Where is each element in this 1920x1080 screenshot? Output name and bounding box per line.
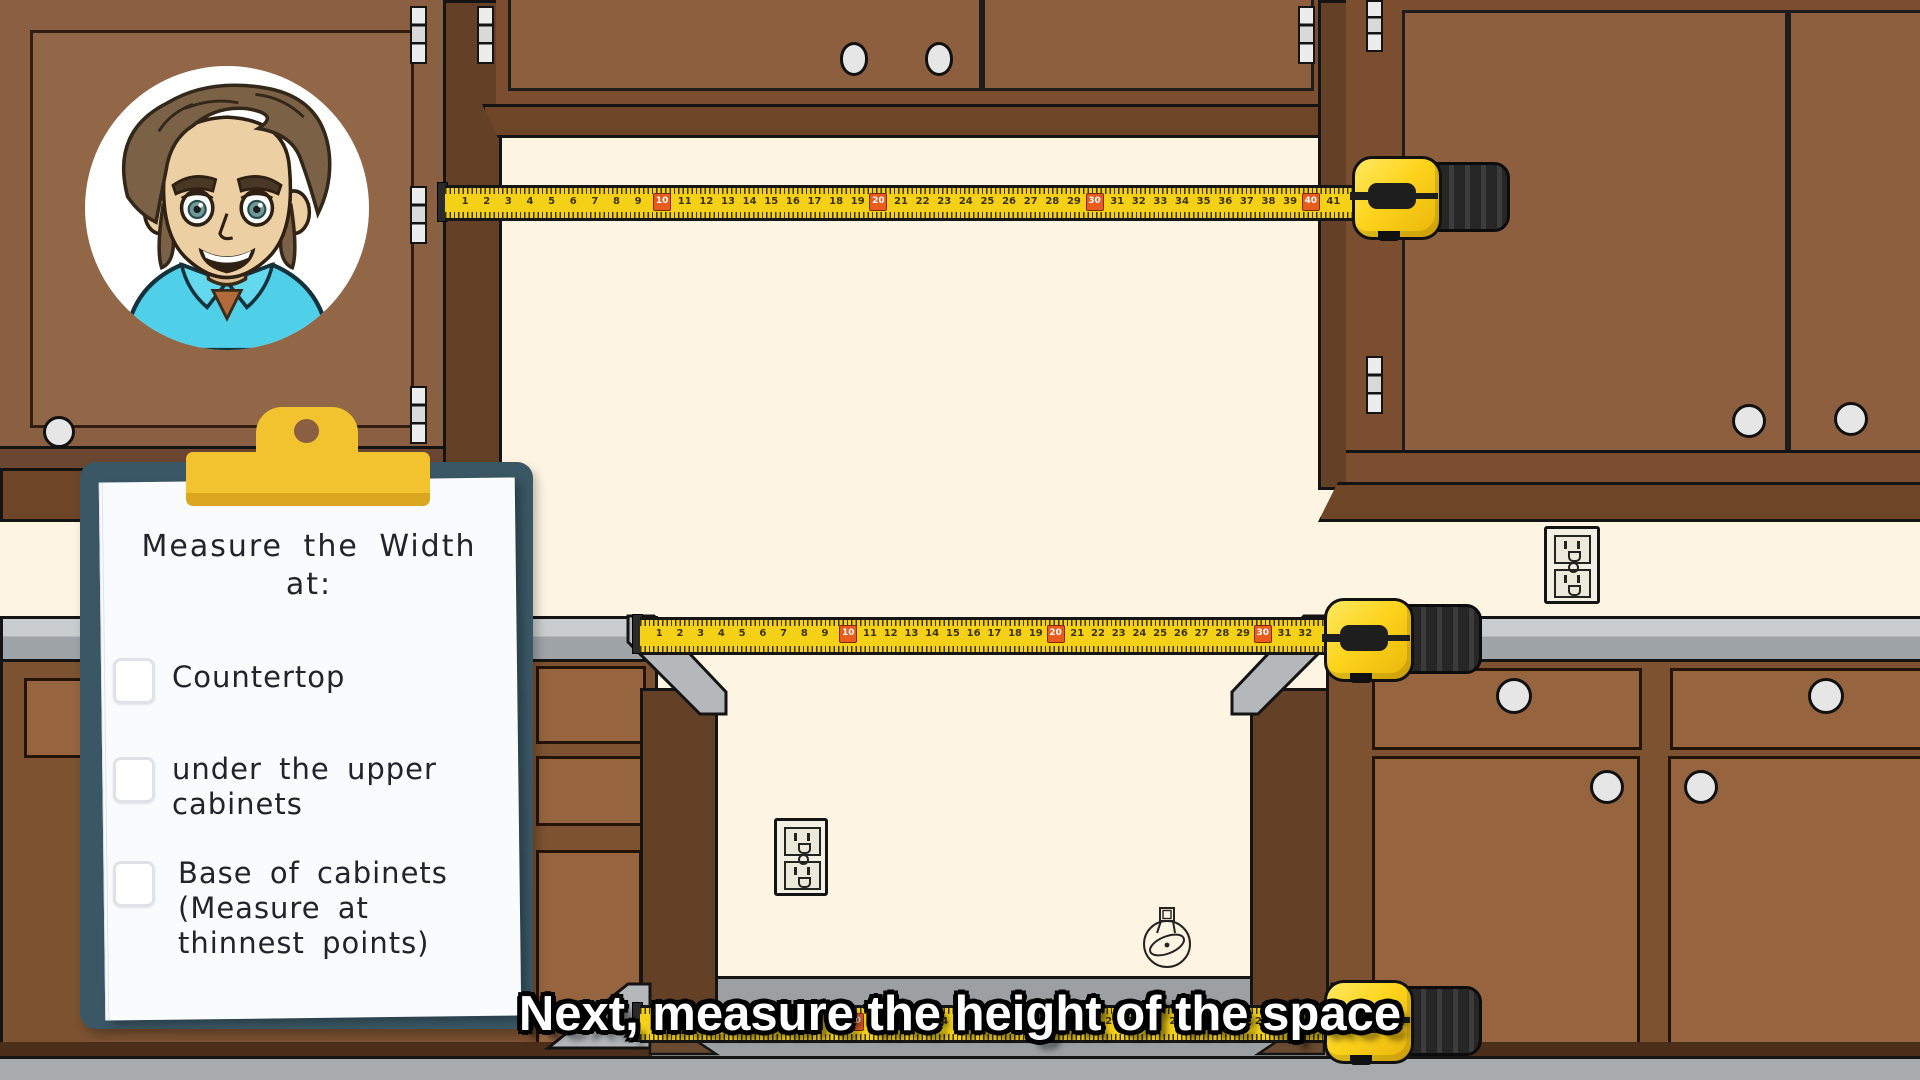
checkbox-under-upper-cabinets xyxy=(113,757,155,803)
checklist-item-label: under the upper cabinets xyxy=(172,752,512,822)
lower-left-drawer xyxy=(536,666,646,744)
upper-middle-door-right xyxy=(982,0,1314,91)
tape-scale-number: 13 xyxy=(721,196,735,208)
tape-scale-number: 16 xyxy=(786,196,800,208)
tape-scale-number: 30 xyxy=(1086,193,1104,211)
checklist-heading: Measure the Width at: xyxy=(118,528,500,603)
tape-scale-number: 19 xyxy=(851,196,865,208)
hinge-icon xyxy=(1366,356,1383,414)
tape-scale-number: 29 xyxy=(1067,196,1081,208)
tape-scale-number: 20 xyxy=(1047,625,1065,643)
tape-scale-number: 31 xyxy=(1278,628,1292,640)
cabinet-knob xyxy=(1834,402,1868,436)
tape-scale-number: 14 xyxy=(925,628,939,640)
tape-scale-number: 3 xyxy=(697,628,704,640)
tape-measure-band-top: 1234567891011121314151617181920212223242… xyxy=(445,185,1353,221)
tape-scale-number: 24 xyxy=(959,196,973,208)
tape-scale-number: 12 xyxy=(699,196,713,208)
cabinet-knob xyxy=(43,416,75,448)
tape-scale-number: 31 xyxy=(1110,196,1124,208)
tape-scale-number: 7 xyxy=(591,196,598,208)
tape-scale-number: 32 xyxy=(1298,628,1312,640)
tape-scale-number: 29 xyxy=(1236,628,1250,640)
tape-scale-number: 41 xyxy=(1326,196,1340,208)
tape-scale-number: 37 xyxy=(1240,196,1254,208)
checkbox-countertop xyxy=(113,658,155,704)
tape-scale-number: 25 xyxy=(1153,628,1167,640)
upper-right-cabinet-rail xyxy=(1346,450,1920,485)
tape-scale-number: 8 xyxy=(801,628,808,640)
tape-scale-number: 35 xyxy=(1197,196,1211,208)
lower-right-side-column xyxy=(1250,688,1332,1022)
tape-measure-band-middle: 1234567891011121314151617181920212223242… xyxy=(640,617,1324,655)
cabinet-knob xyxy=(1684,770,1718,804)
tape-scale-number: 7 xyxy=(780,628,787,640)
hinge-icon xyxy=(1366,0,1383,52)
tape-scale-number: 21 xyxy=(1070,628,1084,640)
tape-scale-number: 9 xyxy=(822,628,829,640)
checklist-item-label: Countertop xyxy=(172,660,502,695)
tape-scale-number: 26 xyxy=(1002,196,1016,208)
tape-scale-number: 1 xyxy=(656,628,663,640)
cabinet-knob xyxy=(925,42,953,76)
clipboard-clip-hole xyxy=(294,419,319,443)
tape-scale-number: 30 xyxy=(1254,625,1272,643)
tape-scale-number: 5 xyxy=(739,628,746,640)
tape-scale-number: 27 xyxy=(1195,628,1209,640)
tape-scale-number: 19 xyxy=(1029,628,1043,640)
tape-scale-number: 26 xyxy=(1174,628,1188,640)
floor xyxy=(0,1056,1920,1080)
cabinet-knob xyxy=(1590,770,1624,804)
hinge-icon xyxy=(477,6,494,64)
tape-scale-number: 18 xyxy=(1008,628,1022,640)
tape-scale-number: 24 xyxy=(1132,628,1146,640)
upper-right-cabinet-molding xyxy=(1318,482,1920,522)
tape-scale-number: 28 xyxy=(1215,628,1229,640)
tape-scale-number: 1 xyxy=(462,196,469,208)
tape-scale-number: 11 xyxy=(678,196,692,208)
tape-scale-number: 28 xyxy=(1045,196,1059,208)
tape-scale-number: 36 xyxy=(1218,196,1232,208)
tape-scale-number: 6 xyxy=(759,628,766,640)
cabinet-knob xyxy=(1732,404,1766,438)
tape-measure-body xyxy=(1352,156,1504,234)
tape-scale-number: 5 xyxy=(548,196,555,208)
tape-scale-number: 40 xyxy=(1302,193,1320,211)
subtitle-caption: Next, measure the height of the space xyxy=(0,986,1920,1042)
tape-scale-number: 32 xyxy=(1132,196,1146,208)
tape-scale-number: 4 xyxy=(718,628,725,640)
drawer-knob xyxy=(1496,678,1532,714)
tape-scale-number: 2 xyxy=(676,628,683,640)
hinge-icon xyxy=(1298,6,1315,64)
fixture-icon xyxy=(1140,906,1194,970)
tape-scale-number: 9 xyxy=(635,196,642,208)
tape-scale-number: 16 xyxy=(967,628,981,640)
lower-left-side-column xyxy=(640,688,718,1024)
tape-scale-number: 15 xyxy=(764,196,778,208)
wall-outlet-icon xyxy=(774,818,828,896)
kitchen-scene: 1234567891011121314151617181920212223242… xyxy=(0,0,1920,1080)
tape-scale-number: 39 xyxy=(1283,196,1297,208)
tape-scale-number: 23 xyxy=(937,196,951,208)
tape-scale-number: 14 xyxy=(743,196,757,208)
lower-left-panel xyxy=(536,756,646,826)
cabinet-knob xyxy=(840,42,868,76)
tape-scale-number: 4 xyxy=(526,196,533,208)
lower-right-drawer xyxy=(1670,668,1920,750)
presenter-avatar xyxy=(85,66,369,350)
tape-scale-number: 8 xyxy=(613,196,620,208)
tape-scale-number: 23 xyxy=(1112,628,1126,640)
hinge-icon xyxy=(410,6,427,64)
tape-scale-number: 13 xyxy=(904,628,918,640)
upper-right-door-right xyxy=(1788,10,1920,456)
tape-scale-number: 20 xyxy=(869,193,887,211)
tape-scale-number: 38 xyxy=(1262,196,1276,208)
tape-scale-number: 27 xyxy=(1024,196,1038,208)
tape-scale-number: 11 xyxy=(863,628,877,640)
tape-scale-number: 12 xyxy=(884,628,898,640)
tape-scale-number: 18 xyxy=(829,196,843,208)
checklist-item-label: Base of cabinets (Measure at thinnest po… xyxy=(178,856,518,960)
upper-middle-cabinet-molding xyxy=(482,104,1340,138)
tape-scale-number: 34 xyxy=(1175,196,1189,208)
tape-scale-number: 17 xyxy=(808,196,822,208)
upper-middle-door-left xyxy=(508,0,982,91)
tape-scale-number: 3 xyxy=(505,196,512,208)
tape-scale-number: 6 xyxy=(570,196,577,208)
tape-scale-number: 15 xyxy=(946,628,960,640)
tape-scale-number: 10 xyxy=(653,193,671,211)
wall-outlet-icon xyxy=(1544,526,1600,604)
tape-scale-number: 22 xyxy=(1091,628,1105,640)
tape-scale-number: 17 xyxy=(987,628,1001,640)
checkbox-base-of-cabinets xyxy=(113,861,155,907)
drawer-knob xyxy=(1808,678,1844,714)
tape-measure-body xyxy=(1324,598,1476,676)
tape-scale-number: 21 xyxy=(894,196,908,208)
tape-scale-number: 22 xyxy=(916,196,930,208)
hinge-icon xyxy=(410,186,427,244)
hinge-icon xyxy=(410,386,427,444)
tape-scale-number: 25 xyxy=(980,196,994,208)
clipboard-clip-bar xyxy=(186,452,430,506)
tape-scale-number: 33 xyxy=(1153,196,1167,208)
tape-scale-number: 10 xyxy=(839,625,857,643)
tape-scale-number: 2 xyxy=(483,196,490,208)
